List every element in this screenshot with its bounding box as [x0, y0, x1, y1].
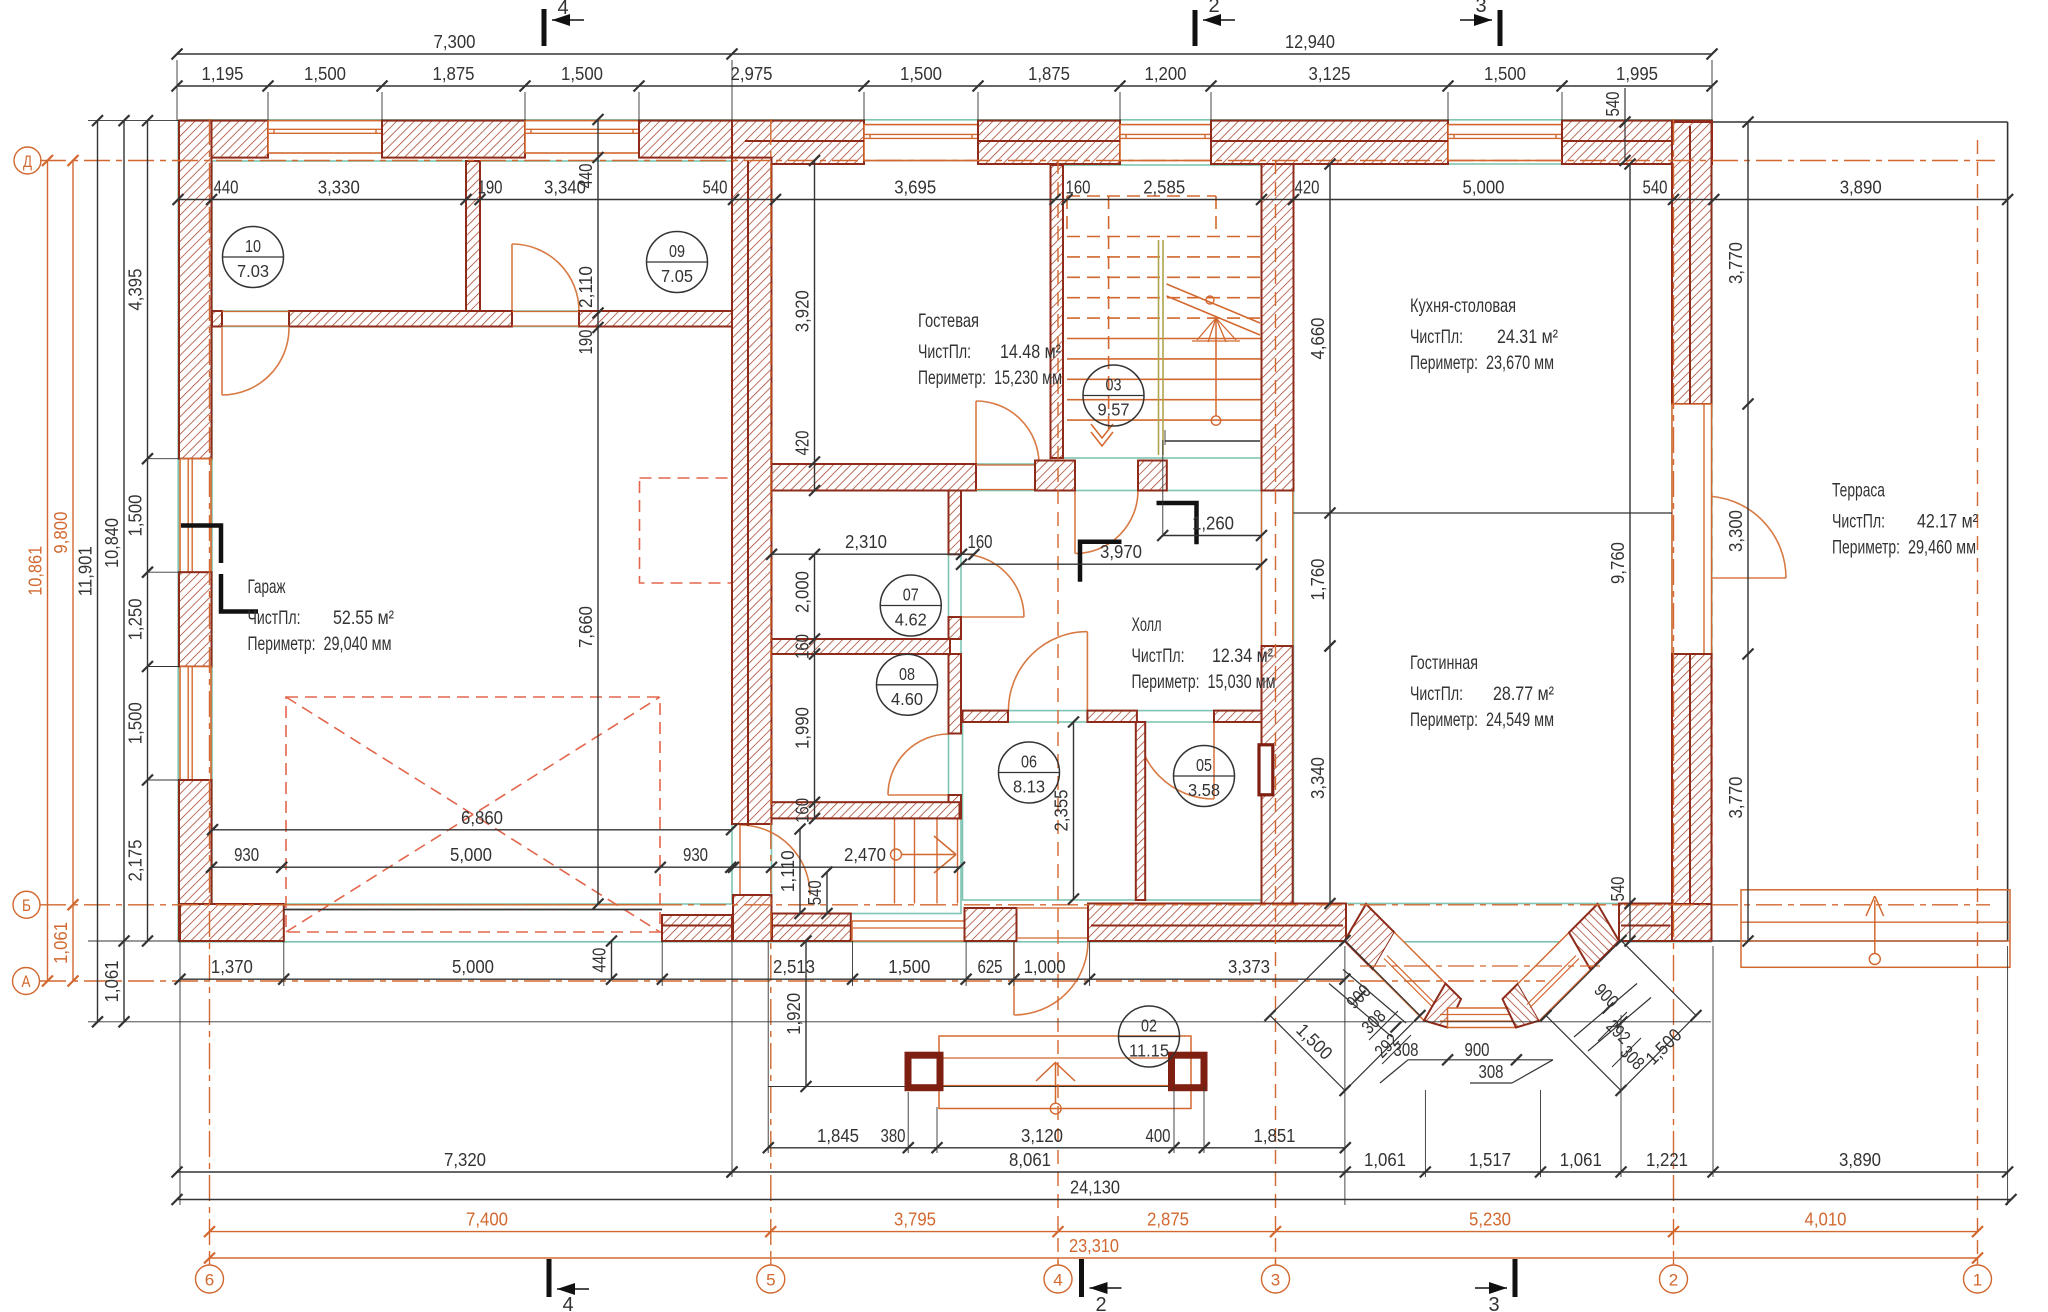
svg-text:3.58: 3.58	[1188, 780, 1220, 800]
svg-text:160: 160	[792, 798, 813, 823]
svg-text:1,061: 1,061	[101, 960, 122, 1002]
svg-text:ЧистПл:: ЧистПл:	[1132, 645, 1185, 667]
svg-text:24,130: 24,130	[1070, 1177, 1120, 1198]
svg-text:7.03: 7.03	[237, 261, 269, 281]
svg-text:Терраса: Терраса	[1832, 480, 1885, 502]
svg-text:380: 380	[881, 1125, 906, 1146]
svg-text:07: 07	[903, 585, 919, 605]
svg-text:10,861: 10,861	[25, 546, 46, 596]
svg-text:190: 190	[575, 330, 596, 355]
svg-text:10,840: 10,840	[101, 518, 122, 568]
svg-text:7,300: 7,300	[434, 31, 476, 52]
svg-text:540: 540	[1602, 92, 1623, 117]
svg-text:1,500: 1,500	[900, 63, 942, 84]
svg-text:2,310: 2,310	[845, 531, 887, 552]
svg-text:160: 160	[968, 531, 993, 552]
svg-text:52.55 м²: 52.55 м²	[333, 607, 394, 629]
svg-text:7,400: 7,400	[466, 1209, 508, 1230]
svg-text:Периметр:: Периметр:	[248, 633, 316, 655]
svg-text:5: 5	[766, 1271, 775, 1290]
svg-text:1,500: 1,500	[888, 956, 930, 977]
svg-text:Гараж: Гараж	[248, 576, 286, 598]
svg-text:8.13: 8.13	[1013, 777, 1045, 797]
svg-text:9.57: 9.57	[1098, 400, 1130, 420]
svg-text:ЧистПл:: ЧистПл:	[1832, 511, 1885, 533]
svg-text:8,061: 8,061	[1009, 1149, 1051, 1170]
svg-text:11,901: 11,901	[75, 546, 96, 596]
svg-text:ЧистПл:: ЧистПл:	[1410, 683, 1463, 705]
svg-text:6: 6	[205, 1271, 214, 1290]
svg-text:1,061: 1,061	[1364, 1149, 1406, 1170]
svg-text:3,770: 3,770	[1725, 242, 1746, 284]
svg-text:7,320: 7,320	[444, 1149, 486, 1170]
svg-text:3,373: 3,373	[1228, 956, 1270, 977]
svg-text:308: 308	[1479, 1061, 1504, 1082]
svg-text:1,370: 1,370	[211, 956, 253, 977]
svg-text:540: 540	[804, 880, 825, 905]
svg-text:15,230 мм: 15,230 мм	[994, 367, 1062, 389]
svg-text:24.31 м²: 24.31 м²	[1497, 326, 1558, 348]
svg-text:3,970: 3,970	[1100, 541, 1142, 562]
svg-text:1,995: 1,995	[1616, 63, 1658, 84]
svg-text:2: 2	[1208, 0, 1219, 17]
svg-text:1,500: 1,500	[125, 495, 146, 537]
svg-text:930: 930	[234, 844, 259, 865]
svg-text:9,800: 9,800	[50, 512, 71, 554]
svg-text:2,975: 2,975	[731, 63, 773, 84]
svg-text:14.48 м²: 14.48 м²	[1000, 341, 1061, 363]
svg-text:7.05: 7.05	[661, 266, 693, 286]
svg-text:5,000: 5,000	[450, 844, 492, 865]
svg-text:1,500: 1,500	[561, 63, 603, 84]
svg-text:400: 400	[1146, 1125, 1171, 1146]
svg-text:1,061: 1,061	[50, 922, 71, 964]
svg-text:Периметр:: Периметр:	[1832, 537, 1900, 559]
svg-text:2,470: 2,470	[844, 844, 886, 865]
svg-text:3,330: 3,330	[318, 177, 360, 198]
svg-text:29,460 мм: 29,460 мм	[1908, 537, 1976, 559]
svg-text:2,875: 2,875	[1147, 1209, 1189, 1230]
svg-text:190: 190	[478, 177, 503, 198]
svg-text:3: 3	[1271, 1271, 1280, 1290]
svg-text:4: 4	[1053, 1271, 1062, 1290]
svg-text:1,221: 1,221	[1646, 1149, 1688, 1170]
svg-text:1,517: 1,517	[1469, 1149, 1511, 1170]
svg-text:930: 930	[683, 844, 708, 865]
svg-text:1: 1	[1973, 1271, 1982, 1290]
svg-text:06: 06	[1021, 752, 1037, 772]
svg-text:2: 2	[1669, 1271, 1678, 1290]
svg-text:24,549 мм: 24,549 мм	[1486, 709, 1554, 731]
svg-text:3,120: 3,120	[1021, 1125, 1063, 1146]
svg-text:Холл: Холл	[1132, 614, 1162, 636]
svg-text:1,875: 1,875	[1028, 63, 1070, 84]
svg-text:2: 2	[1095, 1294, 1106, 1312]
svg-text:4,660: 4,660	[1307, 318, 1328, 360]
svg-text:420: 420	[1295, 177, 1320, 198]
svg-text:4.62: 4.62	[895, 610, 927, 630]
svg-text:1,260: 1,260	[1192, 513, 1234, 534]
svg-text:540: 540	[703, 177, 728, 198]
svg-text:4,395: 4,395	[125, 269, 146, 311]
svg-text:05: 05	[1196, 755, 1212, 775]
svg-text:1,200: 1,200	[1145, 63, 1187, 84]
svg-text:5,000: 5,000	[1463, 177, 1505, 198]
svg-text:440: 440	[575, 164, 596, 189]
svg-text:1,110: 1,110	[777, 850, 798, 892]
svg-text:1,195: 1,195	[202, 63, 244, 84]
svg-text:4,010: 4,010	[1805, 1209, 1847, 1230]
svg-text:ЧистПл:: ЧистПл:	[1410, 326, 1463, 348]
svg-text:ЧистПл:: ЧистПл:	[248, 607, 301, 629]
svg-text:2,585: 2,585	[1143, 177, 1185, 198]
svg-text:3,300: 3,300	[1725, 510, 1746, 552]
svg-text:3: 3	[1475, 0, 1486, 17]
svg-text:1,500: 1,500	[1484, 63, 1526, 84]
svg-text:Гостинная: Гостинная	[1410, 652, 1478, 674]
svg-text:А: А	[22, 972, 32, 991]
svg-text:3,340: 3,340	[1307, 757, 1328, 799]
svg-text:540: 540	[1643, 177, 1668, 198]
svg-text:Б: Б	[22, 896, 31, 915]
svg-text:1,061: 1,061	[1560, 1149, 1602, 1170]
svg-text:5,230: 5,230	[1469, 1209, 1511, 1230]
svg-text:Д: Д	[23, 152, 32, 171]
svg-text:11.15: 11.15	[1129, 1041, 1169, 1061]
svg-text:160: 160	[1066, 177, 1091, 198]
svg-text:4.60: 4.60	[891, 689, 923, 709]
svg-text:10: 10	[245, 236, 261, 256]
svg-text:160: 160	[792, 634, 813, 659]
svg-text:Периметр:: Периметр:	[1410, 352, 1478, 374]
svg-text:23,310: 23,310	[1069, 1235, 1119, 1256]
svg-text:42.17 м²: 42.17 м²	[1917, 511, 1978, 533]
svg-text:1,845: 1,845	[817, 1125, 859, 1146]
svg-text:1,990: 1,990	[792, 707, 813, 749]
svg-text:3: 3	[1488, 1294, 1499, 1312]
svg-text:Гостевая: Гостевая	[918, 310, 979, 332]
svg-text:3,920: 3,920	[792, 290, 813, 332]
svg-text:ЧистПл:: ЧистПл:	[918, 341, 971, 363]
svg-text:625: 625	[978, 956, 1003, 977]
svg-text:12,940: 12,940	[1285, 31, 1335, 52]
svg-text:440: 440	[214, 177, 239, 198]
svg-text:1,500: 1,500	[304, 63, 346, 84]
svg-text:09: 09	[669, 241, 685, 261]
svg-text:2,355: 2,355	[1051, 790, 1072, 832]
svg-text:4: 4	[562, 1294, 573, 1312]
svg-text:03: 03	[1106, 375, 1122, 395]
svg-text:2,110: 2,110	[575, 266, 596, 308]
svg-text:308: 308	[1394, 1039, 1419, 1060]
svg-text:1,500: 1,500	[125, 702, 146, 744]
svg-text:15,030 мм: 15,030 мм	[1208, 671, 1276, 693]
svg-text:540: 540	[1607, 877, 1628, 902]
svg-text:900: 900	[1465, 1039, 1490, 1060]
svg-text:420: 420	[792, 431, 813, 456]
svg-text:6,860: 6,860	[461, 807, 503, 828]
svg-text:2,000: 2,000	[792, 571, 813, 613]
svg-text:12.34 м²: 12.34 м²	[1212, 645, 1273, 667]
svg-text:2,175: 2,175	[125, 840, 146, 882]
svg-text:02: 02	[1141, 1016, 1157, 1036]
svg-text:4: 4	[557, 0, 568, 19]
svg-text:Кухня-столовая: Кухня-столовая	[1410, 295, 1516, 317]
svg-text:440: 440	[589, 948, 610, 973]
svg-text:Периметр:: Периметр:	[1132, 671, 1200, 693]
svg-text:2,513: 2,513	[773, 956, 815, 977]
svg-text:1,760: 1,760	[1307, 559, 1328, 601]
svg-text:3,795: 3,795	[894, 1209, 936, 1230]
svg-text:23,670 мм: 23,670 мм	[1486, 352, 1554, 374]
svg-text:1,920: 1,920	[783, 993, 804, 1035]
svg-text:1,851: 1,851	[1254, 1125, 1296, 1146]
svg-text:5,000: 5,000	[452, 956, 494, 977]
svg-text:7,660: 7,660	[575, 606, 596, 648]
svg-text:3,695: 3,695	[894, 177, 936, 198]
svg-text:Периметр:: Периметр:	[918, 367, 986, 389]
svg-text:1,250: 1,250	[125, 598, 146, 640]
svg-text:3,890: 3,890	[1840, 177, 1882, 198]
svg-text:1,000: 1,000	[1024, 956, 1066, 977]
svg-text:3,770: 3,770	[1725, 777, 1746, 819]
svg-text:9,760: 9,760	[1607, 542, 1628, 584]
svg-text:3,125: 3,125	[1309, 63, 1351, 84]
svg-text:08: 08	[899, 664, 915, 684]
svg-text:1,875: 1,875	[433, 63, 475, 84]
svg-text:Периметр:: Периметр:	[1410, 709, 1478, 731]
svg-text:28.77 м²: 28.77 м²	[1493, 683, 1554, 705]
svg-text:3,890: 3,890	[1839, 1149, 1881, 1170]
svg-text:29,040 мм: 29,040 мм	[324, 633, 392, 655]
